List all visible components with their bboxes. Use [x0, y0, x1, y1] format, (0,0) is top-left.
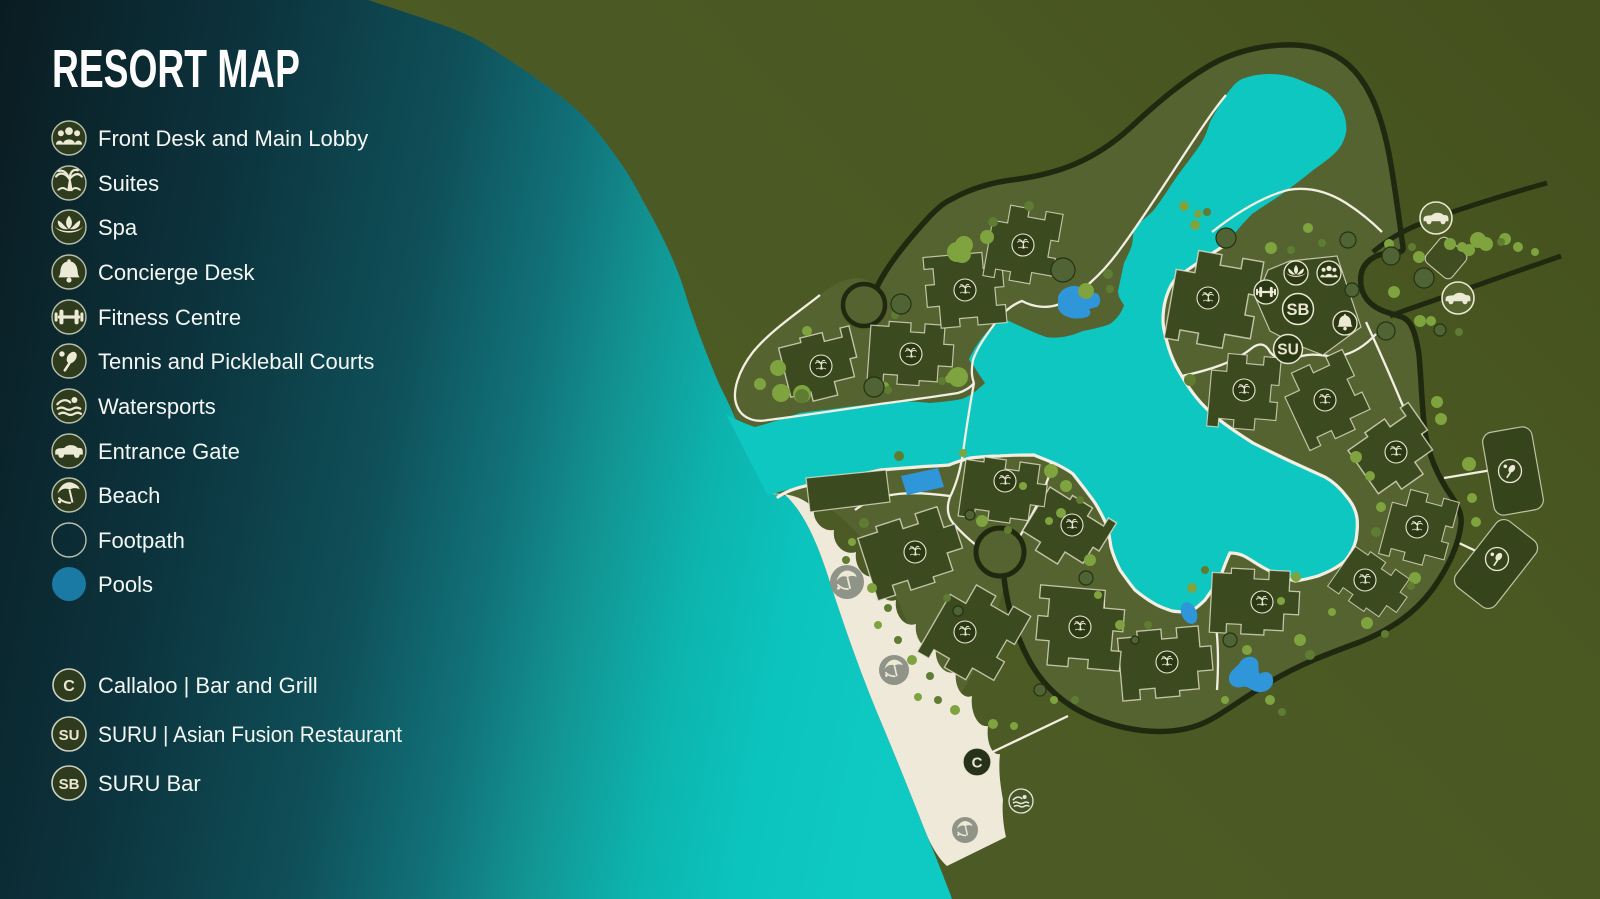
svg-text:Tennis and Pickleball Courts: Tennis and Pickleball Courts [98, 349, 374, 374]
svg-text:SU: SU [1277, 342, 1299, 359]
svg-text:RESORT MAP: RESORT MAP [52, 39, 300, 99]
svg-text:SB: SB [59, 776, 80, 793]
svg-text:Footpath: Footpath [98, 528, 185, 553]
svg-text:SURU | Asian Fusion Restaurant: SURU | Asian Fusion Restaurant [98, 722, 402, 747]
svg-text:Callaloo | Bar and Grill: Callaloo | Bar and Grill [98, 673, 318, 698]
svg-text:Front Desk and Main Lobby: Front Desk and Main Lobby [98, 126, 368, 151]
svg-text:SB: SB [1287, 301, 1310, 319]
svg-text:Concierge Desk: Concierge Desk [98, 260, 256, 285]
svg-text:Pools: Pools [98, 572, 153, 597]
svg-text:C: C [63, 678, 75, 695]
svg-text:C: C [972, 755, 983, 772]
svg-text:Suites: Suites [98, 171, 159, 196]
svg-text:Entrance Gate: Entrance Gate [98, 439, 240, 464]
svg-text:Spa: Spa [98, 215, 138, 240]
svg-text:SURU Bar: SURU Bar [98, 771, 201, 796]
svg-text:SU: SU [59, 727, 80, 744]
svg-text:Beach: Beach [98, 483, 160, 508]
svg-text:Fitness Centre: Fitness Centre [98, 305, 241, 330]
svg-text:Watersports: Watersports [98, 394, 216, 419]
